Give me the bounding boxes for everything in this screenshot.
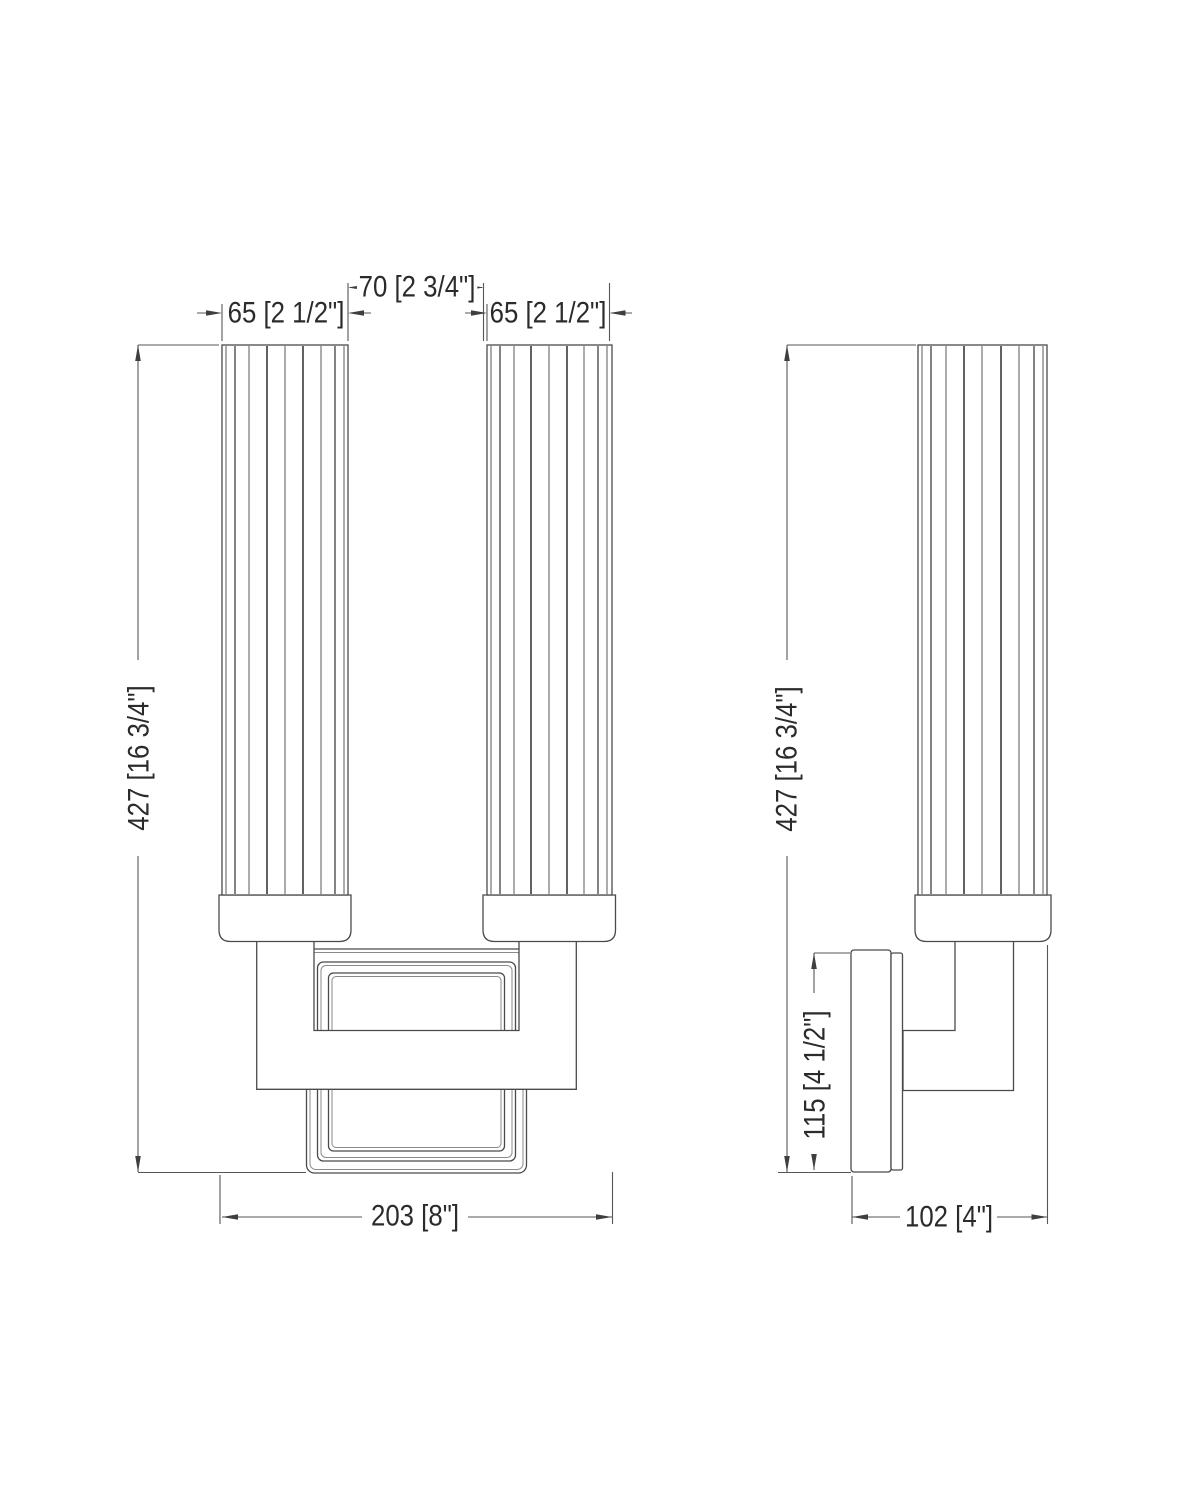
dim-label-fixture-depth: 102 [4"]: [903, 1201, 995, 1233]
side-backplate: [851, 950, 903, 1172]
dim-label-shade-width-left: 65 [2 1/2"]: [226, 297, 346, 329]
dim-label-front-height: 427 [16 3/4"]: [123, 684, 155, 833]
side-shade: [918, 345, 1047, 895]
right-shade: [487, 345, 612, 895]
side-socket-cap: [915, 895, 1051, 942]
dim-label-shade-gap: 70 [2 3/4"]: [357, 271, 477, 303]
sconce-technical-drawing: [0, 0, 1200, 1500]
dim-label-shade-width-right: 65 [2 1/2"]: [488, 297, 608, 329]
dim-label-backplate-height: 115 [4 1/2"]: [799, 1009, 831, 1142]
dim-label-front-width: 203 [8"]: [369, 1200, 461, 1232]
side-arm: [903, 941, 1014, 1091]
dimension-drawing-canvas: 65 [2 1/2"] 70 [2 3/4"] 65 [2 1/2"] 427 …: [0, 0, 1200, 1500]
dim-label-side-height: 427 [16 3/4"]: [771, 685, 803, 834]
left-socket-cap: [219, 895, 351, 942]
left-shade: [222, 345, 348, 895]
front-view: [219, 345, 616, 1173]
right-socket-cap: [483, 895, 616, 942]
side-view: [851, 345, 1051, 1172]
